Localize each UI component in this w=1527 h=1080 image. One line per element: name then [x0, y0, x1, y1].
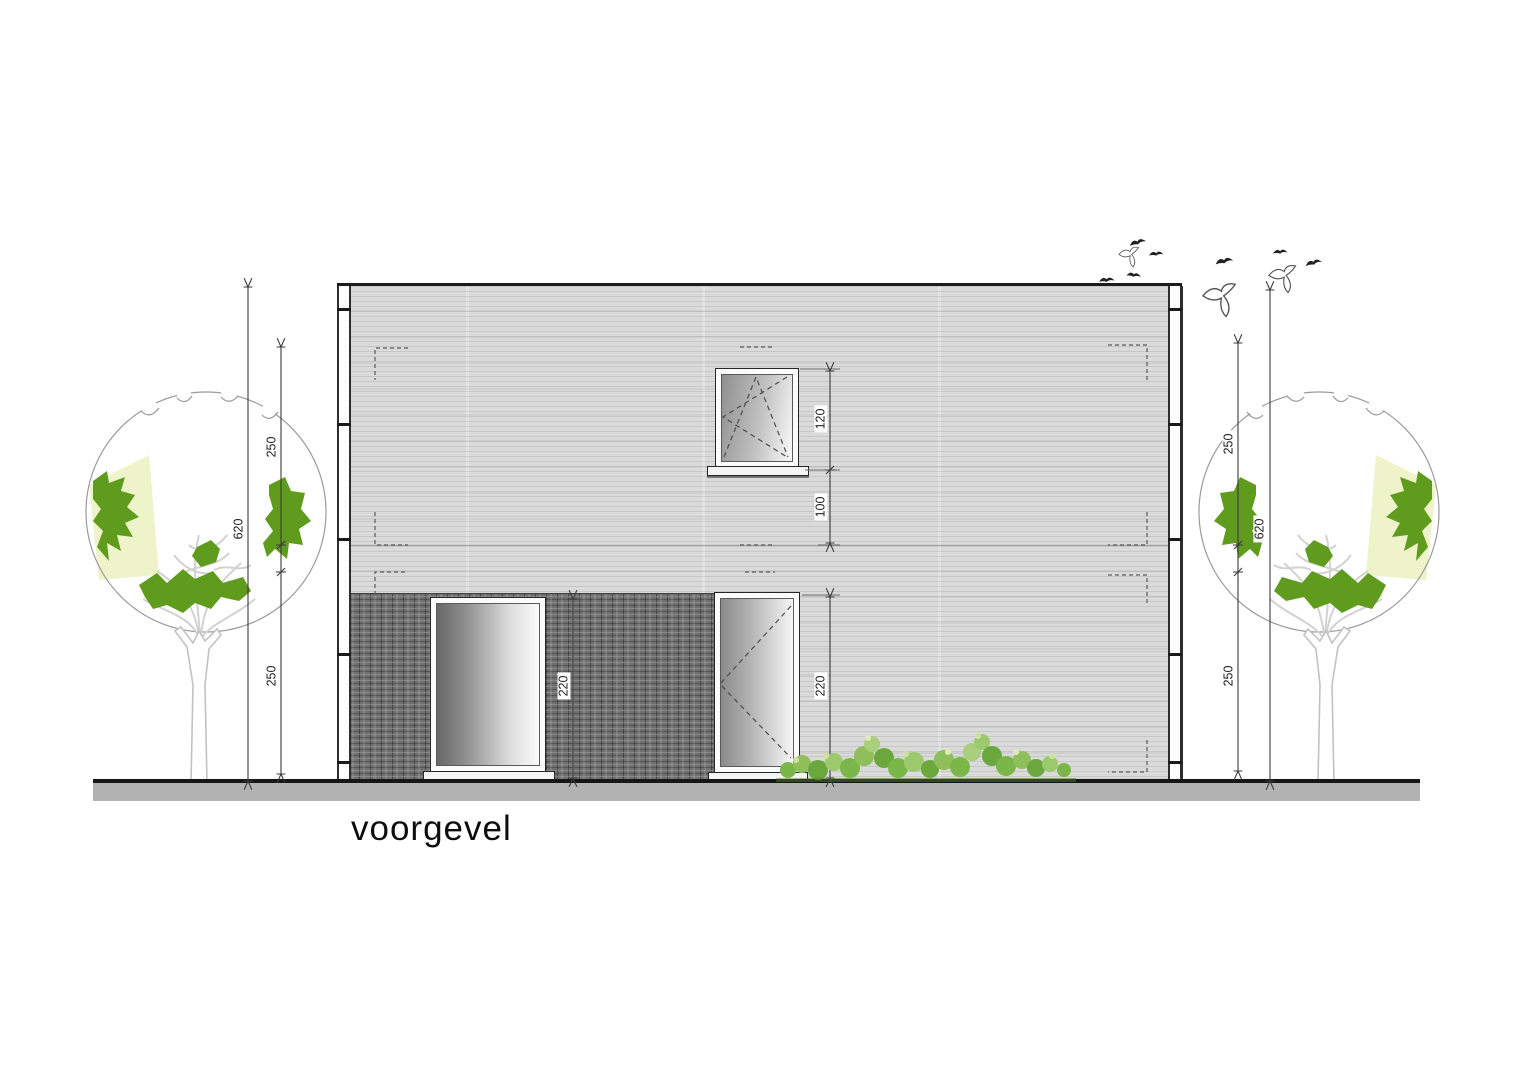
hidden-mark	[1108, 512, 1147, 545]
dim-label-right-total: 620	[1253, 516, 1266, 543]
dim-label-left-total: 620	[232, 516, 245, 543]
dim-label-left-upper: 250	[265, 434, 278, 461]
dim-label-right-upper: 250	[1222, 431, 1235, 458]
bird-flock	[1099, 238, 1322, 316]
hidden-mark	[375, 512, 408, 545]
dim-label-left-lower: 250	[265, 663, 278, 690]
dim-label-right-lower: 250	[1222, 663, 1235, 690]
bush-cluster	[776, 733, 1076, 782]
dim-label-window-height: 120	[814, 406, 827, 433]
linework-overlay	[0, 0, 1527, 1080]
elevation-drawing: 620 250 250 120 100 220 220 250 250 620 …	[0, 0, 1527, 1080]
hidden-mark	[375, 572, 405, 595]
dim-label-door-left: 220	[557, 673, 570, 700]
dim-label-door-right: 220	[814, 673, 827, 700]
drawing-title: voorgevel	[351, 809, 512, 849]
hidden-mark	[1108, 575, 1147, 605]
extension-lines	[548, 369, 840, 598]
tilt-turn-symbol	[723, 377, 788, 457]
dim-label-window-sill: 100	[814, 494, 827, 521]
hidden-mark	[375, 348, 408, 380]
birds	[1085, 222, 1325, 327]
bushes	[776, 722, 1076, 784]
hidden-mark	[1108, 740, 1147, 772]
hidden-mark	[1108, 345, 1147, 380]
